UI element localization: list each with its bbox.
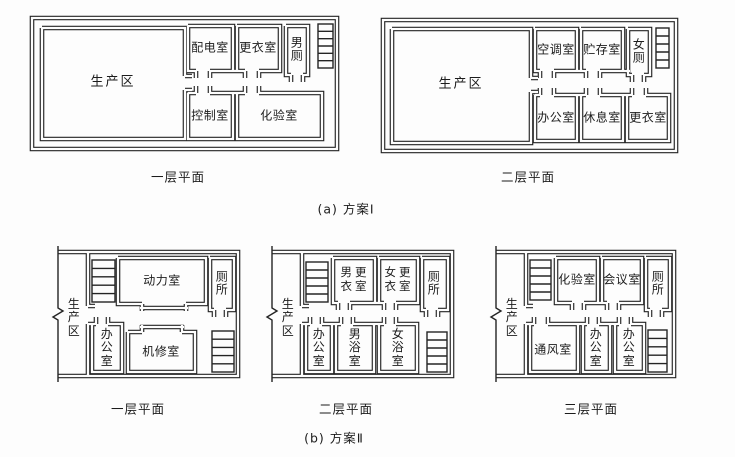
room-label-power-room: 动力室: [143, 274, 181, 287]
stairs-icon: [318, 24, 333, 68]
plan-scheme2-floor1-walls: [53, 246, 238, 382]
caption-scheme1: (a) 方案Ⅰ: [317, 199, 374, 218]
room-label-production-area: 生 产 区: [506, 298, 519, 338]
room-label-production-area: 生 产 区: [68, 298, 81, 338]
break-symbol: [267, 246, 277, 382]
room-label-womens-bath: 女 浴 室: [392, 328, 405, 368]
room-label-mens-toilet: 男 厕: [291, 37, 304, 64]
break-symbol: [491, 246, 501, 382]
room-label-mens-changing: 男更 衣室: [341, 266, 370, 294]
room-label-changing-room: 更衣室: [239, 41, 277, 54]
stairs-icon: [530, 260, 551, 300]
room-label-office: 办 公 室: [623, 328, 636, 368]
room-label-ventilation: 通风室: [534, 343, 572, 356]
stairs-icon: [427, 332, 447, 372]
room-label-rest-room: 休息室: [583, 111, 621, 124]
room-label-laboratory: 化验室: [260, 109, 298, 122]
room-label-production-area: 生产区: [90, 76, 135, 91]
caption-scheme2-floor1: 一层平面: [111, 399, 165, 418]
room-label-toilet: 厕 所: [216, 271, 229, 298]
room-label-production-area: 生 产 区: [282, 298, 295, 338]
room-label-office: 办 公 室: [590, 328, 603, 368]
room-label-toilet: 厕 所: [428, 271, 441, 298]
break-symbol: [53, 246, 63, 382]
room-label-womens-toilet: 女 厕: [633, 39, 646, 66]
caption-scheme2-floor3: 三层平面: [564, 399, 618, 418]
stairs-icon: [656, 28, 669, 68]
stairs-icon: [92, 260, 115, 302]
room-label-meeting-room: 会议室: [603, 273, 641, 286]
caption-scheme1-floor2: 二层平面: [501, 167, 555, 186]
room-label-changing-room: 更衣室: [629, 111, 667, 124]
room-label-production-area: 生产区: [438, 78, 483, 93]
room-label-office: 办 公 室: [101, 328, 114, 368]
room-label-mens-bath: 男 浴 室: [349, 328, 362, 368]
room-label-office: 办公室: [537, 111, 575, 124]
plan-scheme2-floor3-walls: [491, 246, 674, 382]
room-label-office: 办 公 室: [313, 328, 326, 368]
stairs-icon: [306, 262, 328, 302]
room-label-machine-repair: 机修室: [142, 345, 180, 358]
caption-scheme2-floor2: 二层平面: [319, 399, 373, 418]
room-label-power-distribution: 配电室: [191, 41, 229, 54]
caption-scheme2: (b) 方案Ⅱ: [304, 428, 364, 447]
stairs-icon: [212, 331, 234, 372]
caption-scheme1-floor1: 一层平面: [151, 167, 205, 186]
room-label-toilet: 厕 所: [652, 271, 665, 298]
room-label-air-conditioning: 空调室: [537, 43, 575, 56]
room-label-storage-room: 贮存室: [583, 43, 621, 56]
floor-plans-canvas: [0, 0, 735, 457]
room-label-control-room: 控制室: [191, 109, 229, 122]
stairs-icon: [648, 330, 667, 372]
room-label-womens-changing: 女更 衣室: [385, 266, 414, 294]
room-label-laboratory: 化验室: [558, 273, 596, 286]
floor-plan-figure: 生产区 配电室 更衣室 男 厕 控制室 化验室 一层平面 生产区 空调室 贮存室…: [0, 0, 735, 457]
